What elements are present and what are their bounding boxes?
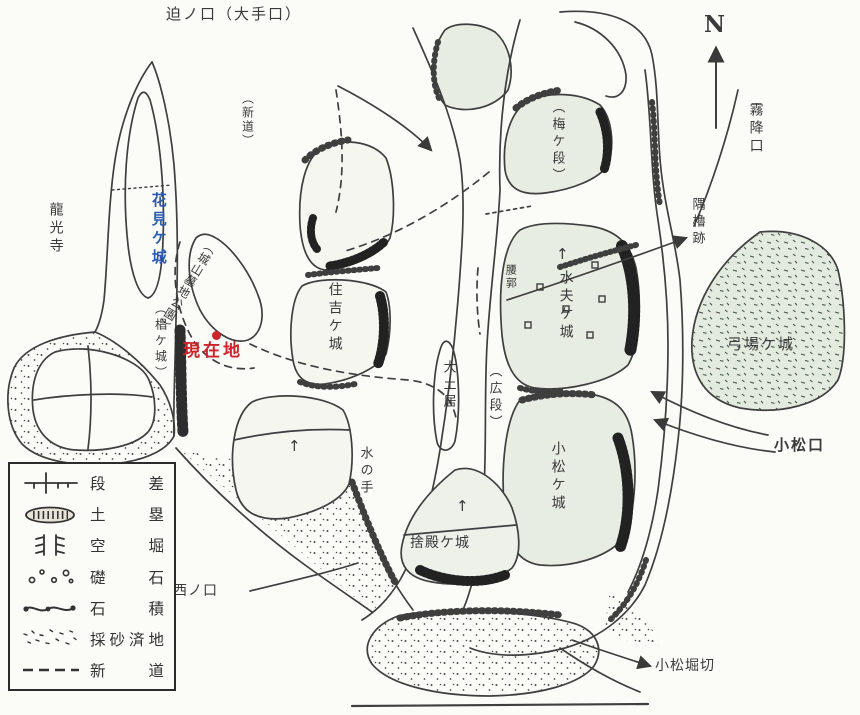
label-new-road: （新道） (240, 92, 253, 148)
step-icon (20, 470, 84, 496)
label-hirodan: （広段） (486, 364, 501, 432)
label-koshikuruwa: 腰郭 (504, 264, 516, 290)
legend-row-step: 段差 (10, 469, 174, 497)
legend-label: 段差 (90, 472, 164, 494)
label-umegadan: （梅ケ段） (549, 100, 564, 185)
legend-label: 空堀 (90, 534, 164, 556)
legend-label: 石積 (90, 597, 164, 619)
stone-masonry-icon (20, 595, 84, 621)
suifugajo-plateau (501, 223, 686, 392)
legend-label: 採砂済地 (90, 628, 164, 650)
south-mound (352, 590, 660, 706)
arrow-up-suifugajo: ↑ (556, 246, 569, 263)
legend-row-foundation-stone: 礎石 (10, 563, 174, 591)
legend-row-quarried-sand: 採砂済地 (10, 625, 174, 653)
foundation-stone-icon (20, 564, 84, 590)
top-center-knob (433, 24, 511, 109)
label-komatsu-horikiri: 小松堀切 (655, 659, 715, 675)
komatsugajo-plateau (503, 392, 635, 566)
arrow-up-sutedonogajo: ↑ (456, 498, 469, 515)
arrow-up-central-plateau: ↑ (288, 438, 301, 455)
label-komatsugajo: 小松ケ城 (549, 441, 565, 513)
label-sumiyoshigajo: 住吉ケ城 (326, 282, 342, 354)
legend-label: 新道 (90, 659, 164, 681)
label-ryukoji-temple: 龍光寺 (47, 202, 63, 256)
label-mizunote: 水の手 (357, 446, 372, 497)
yubagajo-area (692, 231, 845, 410)
label-hanamigajo: 花見ケ城 (150, 192, 167, 268)
label-suifugajo: 水夫ケ城 (557, 270, 573, 342)
legend-label: 礎石 (90, 566, 164, 588)
quarried-sand-icon (20, 626, 84, 652)
legend-row-new-road: 新道 (10, 656, 174, 684)
legend-row-stone-masonry: 石積 (10, 594, 174, 622)
label-sako-entrance: 迫ノ口（大手口） (166, 6, 302, 23)
label-yubagajo: 弓場ケ城 (727, 336, 795, 353)
legend-row-dry-moat: 空堀 (10, 531, 174, 559)
label-odoi: 大土居 (440, 360, 455, 411)
label-nishi-entrance: 西ノ口 (173, 584, 218, 600)
label-sutedonogajo: 捨殿ケ城 (410, 536, 470, 552)
new-road-icon (20, 657, 84, 683)
label-kirifuri-entrance: 霧降口 (747, 102, 763, 156)
legend-label: 土塁 (90, 503, 164, 525)
dry-moat-icon (20, 532, 84, 558)
legend-row-earthwork: 土塁 (10, 500, 174, 528)
label-current-location: 現在地 (183, 342, 243, 361)
sutedonogajo-plateau (401, 469, 519, 584)
earthwork-icon (20, 501, 84, 527)
castle-ruins-guide-map: 迫ノ口（大手口） （新道） N 霧降口 （梅ケ段） 隅櫓跡 龍光寺 花見ケ城 （… (0, 0, 860, 715)
southwest-central-plateau (233, 396, 353, 519)
label-north: N (704, 12, 725, 38)
label-komatsu-entrance: 小松口 (774, 437, 825, 454)
map-legend: 段差 土塁 空堀 (8, 462, 176, 691)
current-location-dot (212, 331, 221, 340)
label-corner-turret-site: 隅櫓跡 (689, 197, 704, 248)
west-sand-hill (8, 332, 174, 465)
